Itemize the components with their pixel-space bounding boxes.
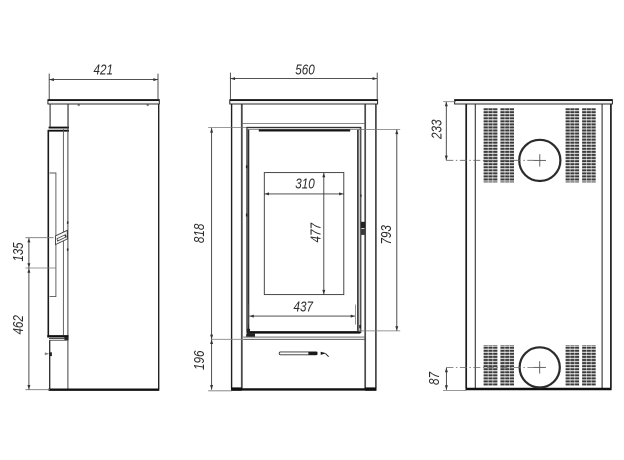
svg-text:560: 560 [295,62,315,78]
svg-text:196: 196 [192,350,208,370]
svg-text:477: 477 [308,222,324,242]
svg-text:421: 421 [94,62,114,78]
svg-text:793: 793 [379,225,395,245]
svg-text:310: 310 [295,176,315,192]
svg-text:818: 818 [192,223,208,243]
svg-text:87: 87 [427,371,443,385]
svg-text:135: 135 [11,242,27,262]
svg-text:437: 437 [294,300,314,316]
svg-text:462: 462 [11,315,27,335]
svg-text:233: 233 [429,120,445,140]
